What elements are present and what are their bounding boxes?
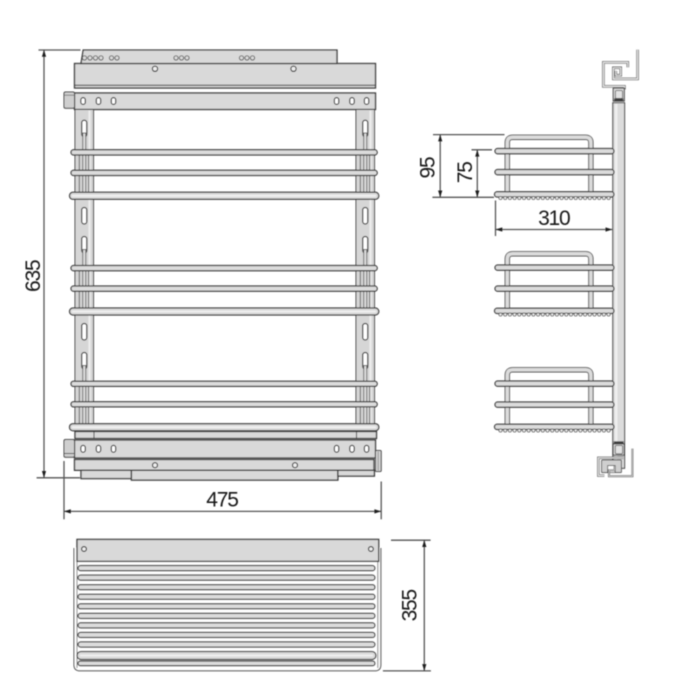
- svg-text:75: 75: [454, 162, 477, 183]
- svg-text:475: 475: [206, 489, 238, 512]
- svg-text:310: 310: [538, 207, 570, 230]
- svg-text:95: 95: [416, 157, 439, 178]
- svg-text:355: 355: [399, 589, 422, 621]
- svg-text:635: 635: [22, 260, 45, 292]
